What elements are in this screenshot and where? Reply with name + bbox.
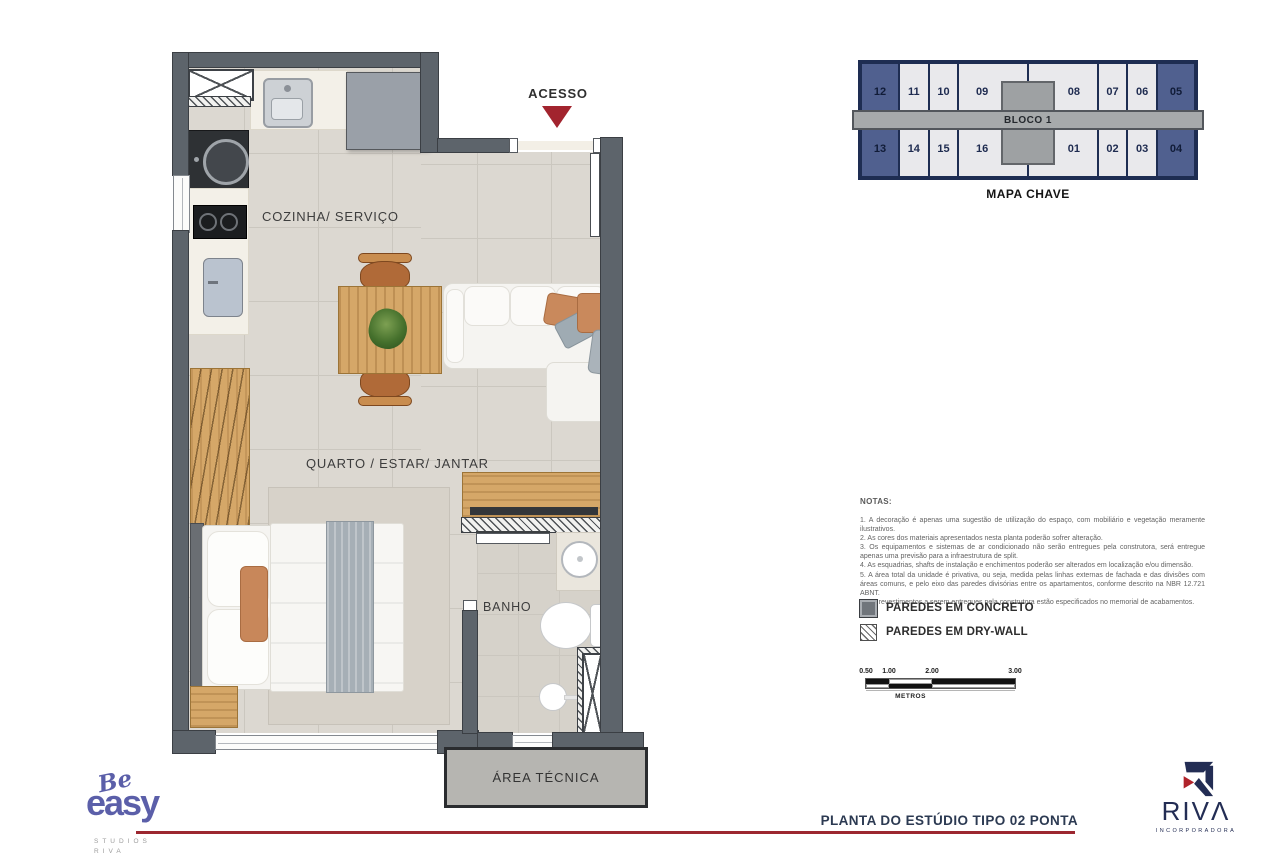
- mini-fridge-handle: [208, 281, 218, 284]
- refrigerator: [346, 72, 428, 150]
- basin-drain: [577, 556, 583, 562]
- kitchen-window: [173, 175, 190, 233]
- washer-knob: [194, 157, 199, 162]
- legend-concrete-label: PAREDES EM CONCRETO: [886, 602, 1034, 614]
- notas-block: NOTAS: 1. A decoração é apenas uma suges…: [860, 497, 1205, 607]
- riva-subtitle: INCORPORADORA: [1146, 828, 1246, 834]
- riva-monogram-icon: [1174, 760, 1218, 798]
- entry-door-leaf: [590, 153, 600, 237]
- sofa-armrest: [446, 289, 464, 363]
- scale-bar-strip: [866, 679, 1015, 688]
- legend-concrete-swatch: [860, 600, 877, 617]
- area-tecnica-box: ÁREA TÉCNICA: [444, 747, 648, 808]
- mapa-chave: 12 11 10 09 08 07 06 05 13 14 15 16 01 0…: [858, 60, 1198, 180]
- scale-baseline: [866, 690, 1015, 691]
- nota-item: 3. Os equipamentos e sistemas de ar cond…: [860, 543, 1205, 561]
- wall-entry-side: [421, 53, 438, 152]
- cozinha-label: COZINHA/ SERVIÇO: [262, 209, 399, 224]
- scale-tick: 2.00: [925, 668, 939, 675]
- be-easy-wordmark: easy: [86, 782, 158, 824]
- acesso-label: ACESSO: [516, 86, 600, 101]
- kitchen-sink: [263, 78, 313, 128]
- drywall-partition: [462, 518, 602, 532]
- plan-title: PLANTA DO ESTÚDIO TIPO 02 PONTA: [600, 813, 1078, 828]
- bed-pillow-orange: [240, 566, 268, 642]
- sink-faucet: [284, 85, 291, 92]
- be-easy-sub-riva: RIVA: [94, 848, 125, 855]
- wall-entry-top: [438, 139, 509, 152]
- nightstand: [190, 686, 238, 728]
- entry-threshold: [518, 141, 593, 150]
- toilet-bowl: [540, 602, 592, 649]
- bathroom-basin: [561, 541, 598, 578]
- wall-top: [173, 53, 435, 67]
- area-tecnica-label: ÁREA TÉCNICA: [492, 770, 599, 785]
- riva-wordmark: RIVΛ: [1146, 798, 1246, 824]
- wall-left-lower: [173, 231, 188, 753]
- dining-chair-top: [352, 253, 416, 289]
- bed-blanket: [326, 521, 374, 693]
- wall-left-upper: [173, 53, 188, 175]
- legend-drywall-label: PAREDES EM DRY-WALL: [886, 626, 1028, 638]
- scale-unit: METROS: [889, 693, 932, 700]
- mapa-chave-title: MAPA CHAVE: [858, 187, 1198, 201]
- wall-bottom-left: [173, 731, 215, 753]
- acesso-arrow-icon: [542, 106, 572, 128]
- shower-head: [539, 683, 567, 711]
- desk-edge: [470, 507, 598, 515]
- be-easy-sub-studios: STUDIOS: [94, 838, 151, 845]
- washer-drum: [203, 139, 249, 185]
- bathroom-shaft: [582, 653, 603, 734]
- notas-title: NOTAS:: [860, 497, 1205, 506]
- burner: [199, 213, 217, 231]
- wardrobe: [190, 368, 250, 527]
- banho-label: BANHO: [483, 600, 531, 614]
- nota-item: 5. A área total da unidade é privativa, …: [860, 571, 1205, 598]
- kitchen-shaft-drywall: [188, 97, 250, 106]
- scale-tick: 1.00: [882, 668, 896, 675]
- riva-logo: RIVΛ INCORPORADORA: [1146, 760, 1246, 834]
- nota-item: 4. As esquadrias, shafts de instalação e…: [860, 561, 1205, 570]
- door-jamb: [509, 138, 518, 153]
- bloco-corridor: BLOCO 1: [852, 110, 1204, 130]
- nota-item: 2. As cores dos materiais apresentados n…: [860, 534, 1205, 543]
- mini-fridge: [203, 258, 243, 317]
- washing-machine: [188, 130, 249, 190]
- legend-drywall-swatch: [860, 624, 877, 641]
- scale-bar: 0.50 1.00 2.00 3.00 METROS: [866, 668, 1016, 702]
- quarto-label: QUARTO / ESTAR/ JANTAR: [306, 456, 489, 471]
- burner: [220, 213, 238, 231]
- door-jamb: [463, 600, 477, 611]
- wall-bathroom-left: [463, 611, 477, 733]
- sink-basin: [271, 98, 303, 120]
- floor-plan: ÁREA TÉCNICA ACESSO COZINHA/ SERVIÇO QUA…: [0, 0, 700, 856]
- facade-window: [215, 735, 440, 750]
- scale-tick: 3.00: [1008, 668, 1022, 675]
- wall-right: [601, 138, 622, 753]
- bathroom-sliding-door: [476, 533, 550, 544]
- nota-item: 1. A decoração é apenas uma sugestão de …: [860, 516, 1205, 534]
- chair-back: [358, 396, 412, 406]
- floor-plan-page: { "plan": { "room_labels": { "acesso": "…: [0, 0, 1280, 856]
- scale-tick: 0.50: [859, 668, 873, 675]
- cooktop: [193, 205, 247, 239]
- sofa-cushion: [464, 286, 510, 326]
- footer-rule: [136, 831, 1075, 834]
- be-easy-logo: Be easy STUDIOS RIVA: [88, 768, 248, 856]
